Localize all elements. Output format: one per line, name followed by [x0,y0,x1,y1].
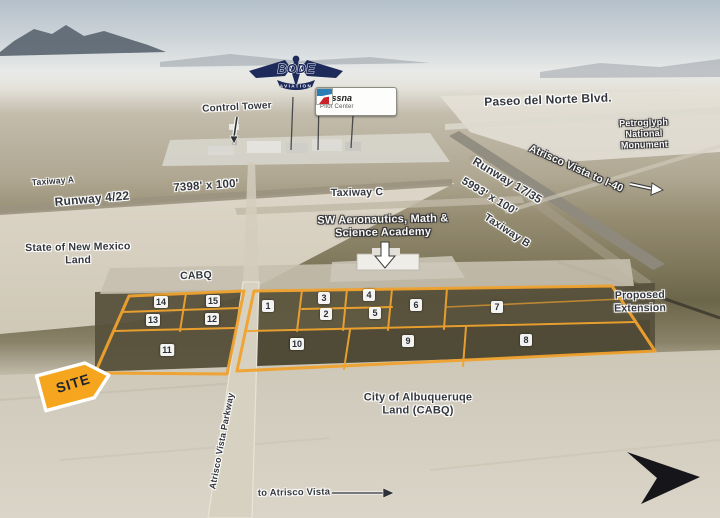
cessna-pilot-center-sign: Cessna Pilot Center [315,87,397,116]
parcel-marker-12: 12 [205,313,219,325]
parcel-grid-outline [95,286,655,374]
annotation-layer [0,0,720,518]
i40-direction-arrow [630,183,663,195]
control-tower-arrow [230,117,238,144]
cessna-logo-icon [316,88,333,105]
parcel-marker-9: 9 [402,335,414,347]
bode-subtitle: AVIATION [280,84,312,89]
site-tag: SITE [28,350,124,418]
parcel-marker-3: 3 [318,292,330,304]
north-arrow-icon [627,452,700,504]
parcel-marker-13: 13 [146,314,160,326]
parcel-marker-14: 14 [154,296,168,308]
parcel-marker-4: 4 [363,289,375,301]
parcel-marker-15: 15 [206,295,220,307]
parcel-marker-5: 5 [369,307,381,319]
aerial-site-map: BODE AVIATION Cessna Pilot Center SITE C… [0,0,720,518]
parcel-marker-11: 11 [160,344,174,356]
parcel-marker-10: 10 [290,338,304,350]
parcel-marker-6: 6 [410,299,422,311]
parcel-marker-2: 2 [320,308,332,320]
parcel-marker-7: 7 [491,301,503,313]
atrisco-direction-arrow [332,488,394,498]
parcel-marker-8: 8 [520,334,532,346]
academy-arrow [375,242,395,268]
parcel-marker-1: 1 [262,300,274,312]
bode-wordmark: BODE [277,61,315,76]
